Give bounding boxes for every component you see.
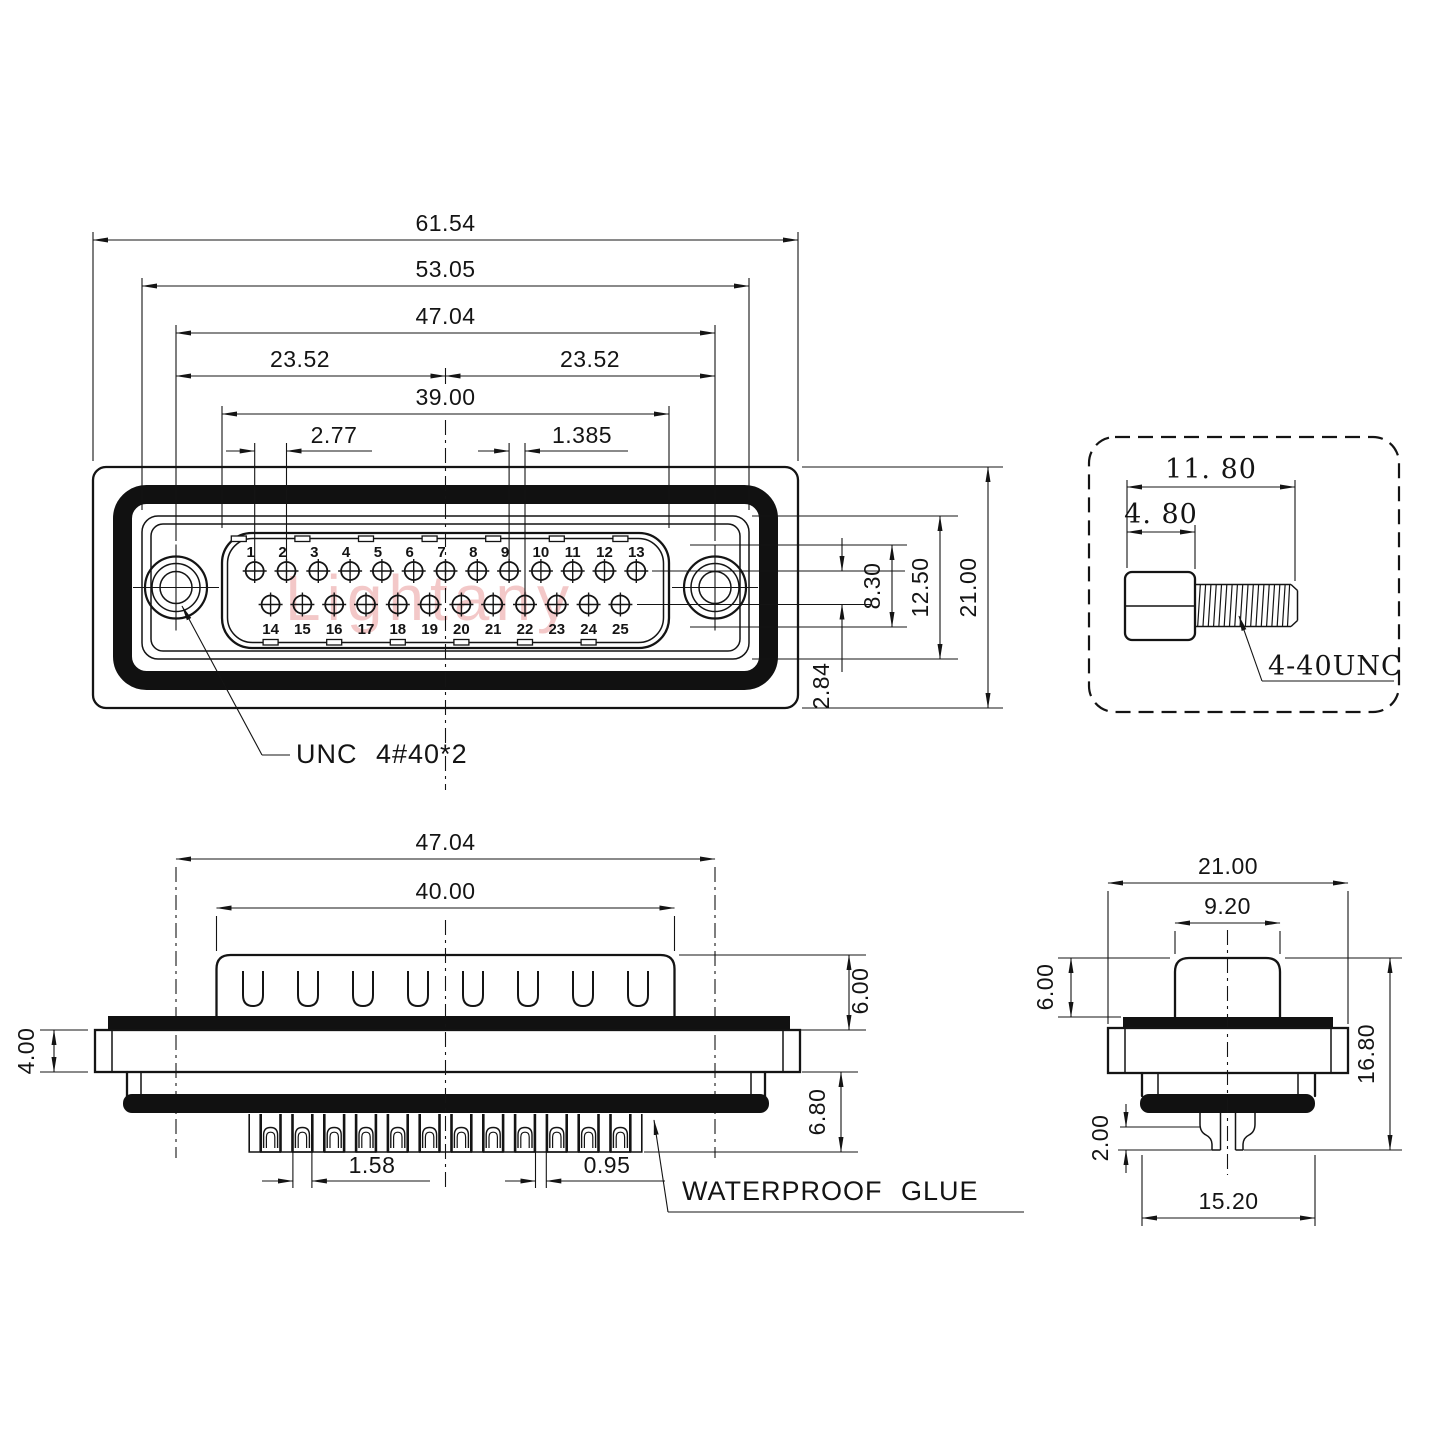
svg-text:11: 11 [565, 544, 581, 561]
mounting-hole-right [672, 545, 758, 631]
dim-screw-head: 4. 80 [1124, 499, 1198, 569]
svg-text:3: 3 [310, 544, 318, 561]
svg-text:4: 4 [342, 544, 351, 561]
svg-text:14: 14 [262, 621, 279, 638]
svg-text:6.00: 6.00 [1032, 964, 1058, 1011]
dim-pin-width: 1.58 [262, 1152, 430, 1188]
side-view: 47.04 40.00 [13, 829, 1024, 1212]
svg-text:16: 16 [326, 621, 343, 638]
dim-hole-half-left: 23.52 [176, 346, 446, 376]
svg-text:2: 2 [278, 544, 286, 561]
dim-insert-height: 12.50 [907, 516, 940, 659]
side-gasket-band [108, 1016, 790, 1030]
glue-label: WATERPROOF GLUE [682, 1176, 979, 1206]
svg-text:39.00: 39.00 [415, 384, 475, 410]
svg-text:24: 24 [580, 621, 597, 638]
svg-text:11. 80: 11. 80 [1165, 454, 1257, 485]
svg-text:23.52: 23.52 [270, 346, 330, 372]
svg-text:21.00: 21.00 [955, 557, 981, 617]
svg-text:5: 5 [374, 544, 382, 561]
svg-text:15.20: 15.20 [1198, 1188, 1258, 1214]
dim-hole-half-right: 23.52 [446, 346, 716, 376]
svg-text:1.58: 1.58 [349, 1152, 396, 1178]
svg-text:2.00: 2.00 [1087, 1115, 1113, 1162]
svg-text:10: 10 [533, 544, 550, 561]
dim-profile-pin-step: 2.00 [1087, 1104, 1200, 1173]
svg-text:1: 1 [247, 544, 255, 561]
svg-text:8.30: 8.30 [859, 563, 885, 610]
svg-text:20: 20 [453, 621, 470, 638]
dim-profile-total-height: 16.80 [1285, 958, 1402, 1150]
technical-drawing-page: Lightany [0, 0, 1440, 1440]
svg-text:17: 17 [358, 621, 375, 638]
svg-text:6.00: 6.00 [847, 968, 873, 1015]
dim-row-gap: 2.84 [808, 538, 842, 709]
svg-text:8: 8 [469, 544, 477, 561]
svg-text:40.00: 40.00 [415, 878, 475, 904]
front-view: Lightany [93, 210, 1003, 790]
svg-text:16.80: 16.80 [1353, 1024, 1379, 1084]
profile-lower-body [1142, 1073, 1315, 1096]
svg-text:6.80: 6.80 [804, 1089, 830, 1136]
svg-text:9: 9 [501, 544, 509, 561]
svg-text:12: 12 [596, 544, 613, 561]
svg-text:61.54: 61.54 [415, 210, 475, 236]
glue-callout: WATERPROOF GLUE [654, 1120, 1024, 1212]
svg-text:9.20: 9.20 [1204, 893, 1251, 919]
svg-text:47.04: 47.04 [415, 829, 475, 855]
technical-drawing-canvas: Lightany [0, 0, 1440, 1440]
profile-view: 21.00 9.20 6.00 [1032, 853, 1402, 1226]
svg-text:2.84: 2.84 [808, 663, 834, 710]
svg-text:13: 13 [628, 544, 645, 561]
svg-text:4. 80: 4. 80 [1124, 499, 1198, 530]
mounting-hole-left [133, 545, 219, 631]
svg-text:22: 22 [517, 621, 534, 638]
svg-text:25: 25 [612, 621, 629, 638]
dim-flange-thickness: 4.00 [13, 1028, 88, 1075]
svg-text:4.00: 4.00 [13, 1028, 39, 1075]
screw-thread [1198, 585, 1290, 626]
dim-profile-shell-height: 6.00 [1032, 958, 1170, 1017]
screw-body [1125, 572, 1298, 640]
dim-pin-inner-width: 0.95 [505, 1152, 665, 1188]
svg-text:47.04: 47.04 [415, 303, 475, 329]
svg-text:23.52: 23.52 [560, 346, 620, 372]
dim-profile-body-width: 15.20 [1142, 1155, 1315, 1226]
thread-label: UNC 4#40*2 [296, 739, 468, 769]
svg-text:2.77: 2.77 [311, 422, 358, 448]
svg-text:21: 21 [485, 621, 502, 638]
dim-overall-height: 21.00 [955, 467, 988, 708]
svg-text:53.05: 53.05 [415, 256, 475, 282]
svg-text:15: 15 [294, 621, 311, 638]
screw-thread-label: 4-40UNC [1268, 651, 1403, 682]
svg-text:6: 6 [406, 544, 414, 561]
svg-text:18: 18 [389, 621, 406, 638]
svg-text:1.385: 1.385 [552, 422, 612, 448]
svg-text:7: 7 [437, 544, 445, 561]
svg-text:0.95: 0.95 [584, 1152, 631, 1178]
dim-pinfield-height: 8.30 [859, 545, 892, 627]
svg-text:19: 19 [421, 621, 438, 638]
side-flange [95, 1030, 800, 1072]
svg-text:21.00: 21.00 [1198, 853, 1258, 879]
screw-detail-view: 11. 80 4. 80 4-40UNC [1089, 437, 1403, 712]
svg-text:12.50: 12.50 [907, 557, 933, 617]
dim-lower-height: 6.80 [802, 1072, 858, 1152]
svg-text:23: 23 [548, 621, 565, 638]
